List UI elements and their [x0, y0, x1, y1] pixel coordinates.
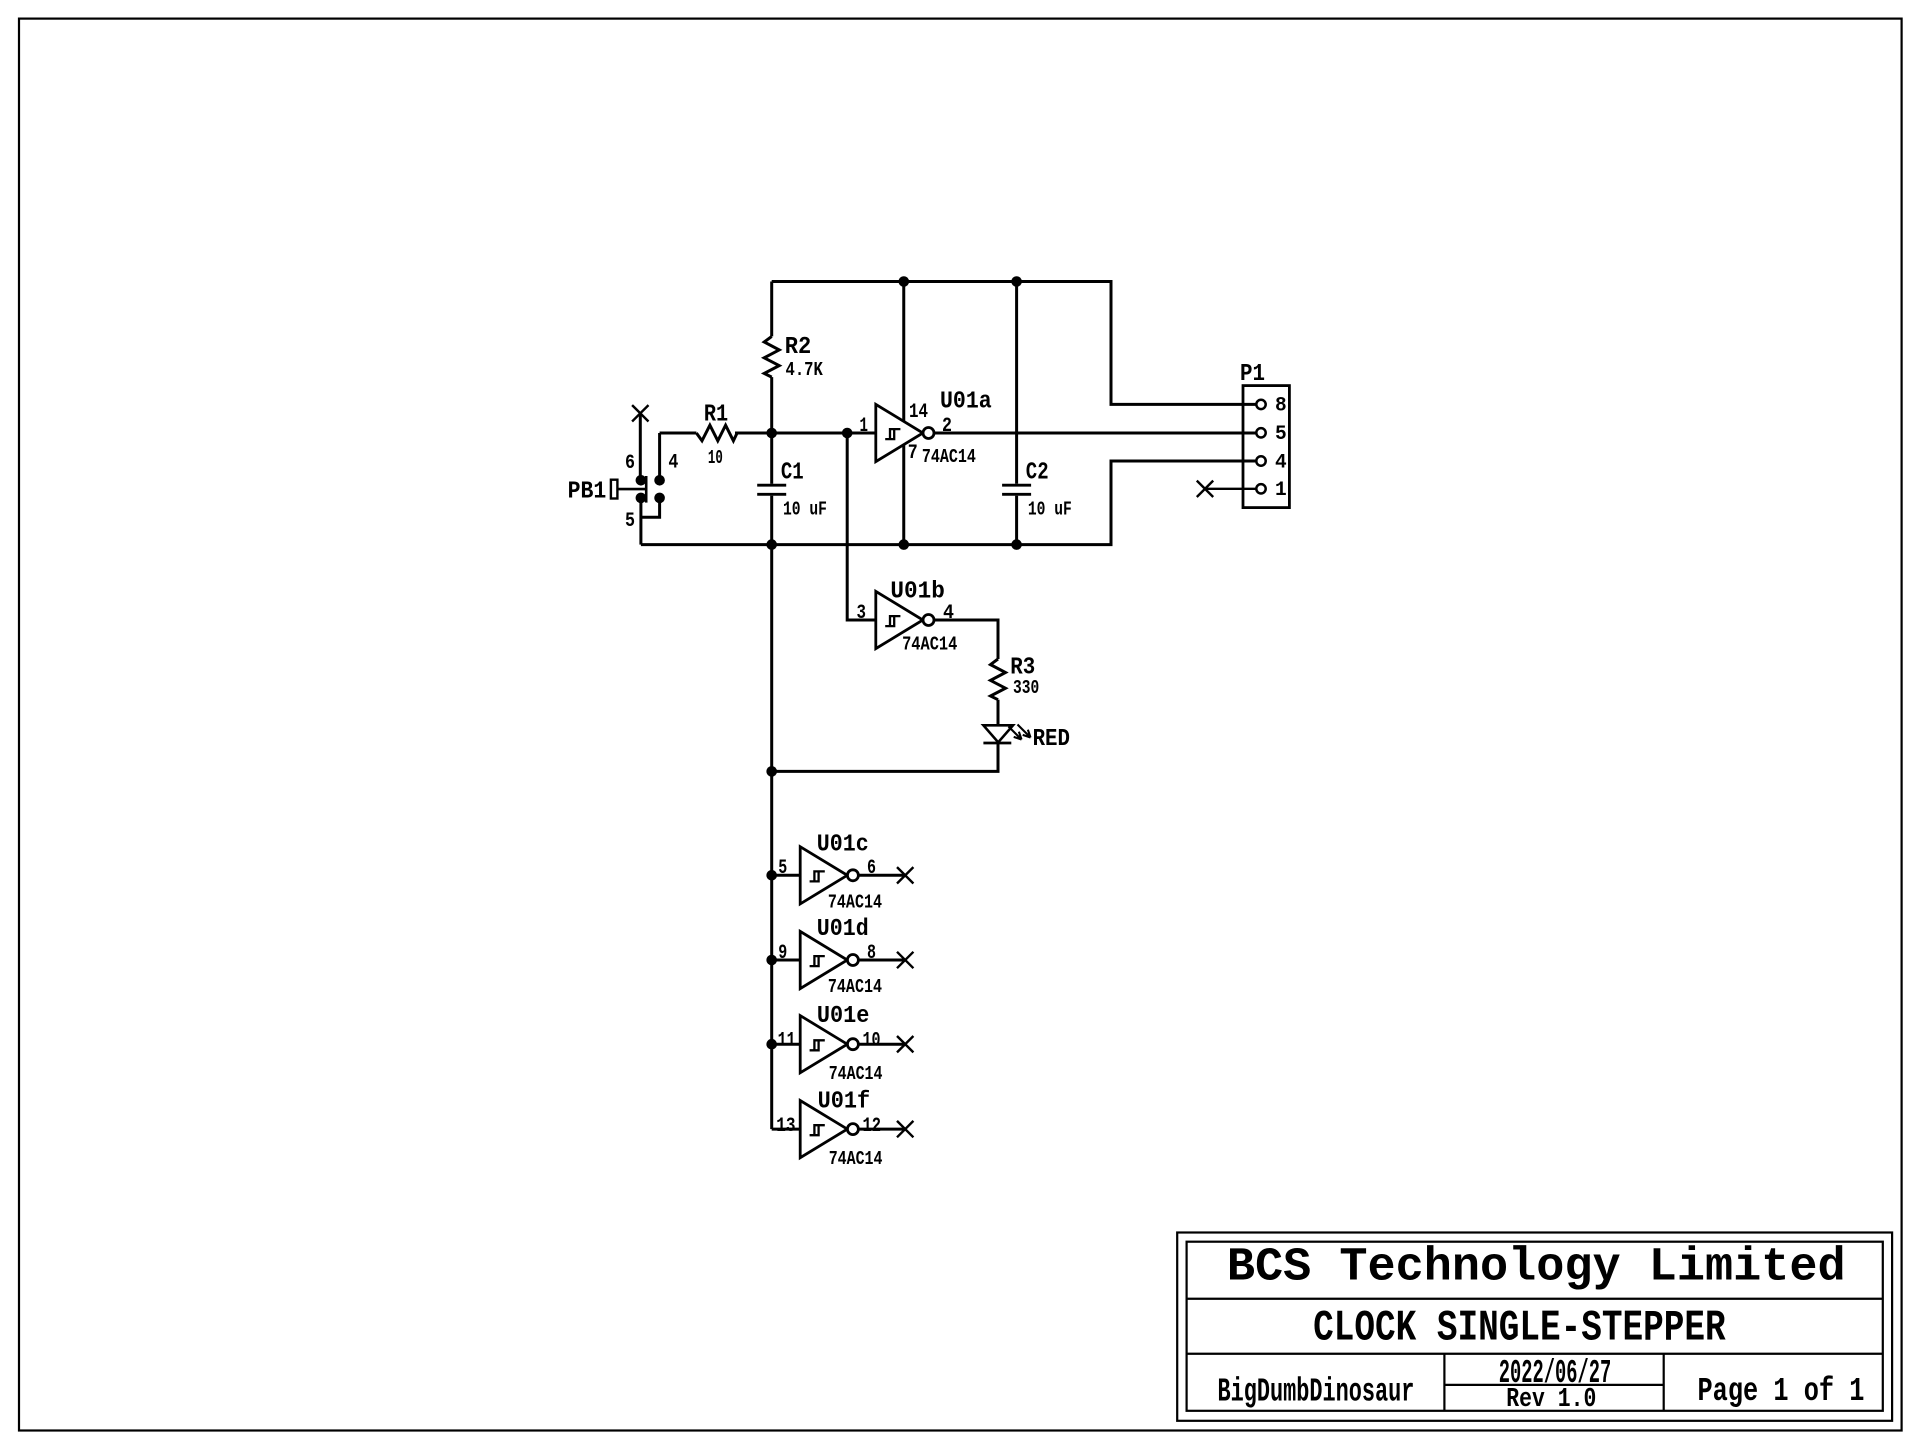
svg-text:R2: R2 [785, 334, 812, 361]
svg-text:10 uF: 10 uF [783, 499, 827, 521]
svg-text:4.7K: 4.7K [786, 359, 824, 381]
svg-text:PB1: PB1 [568, 478, 607, 505]
svg-text:RED: RED [1033, 726, 1070, 753]
svg-text:CLOCK SINGLE-STEPPER: CLOCK SINGLE-STEPPER [1313, 1303, 1726, 1353]
svg-text:4: 4 [1275, 451, 1287, 474]
svg-text:2: 2 [942, 415, 952, 438]
svg-text:330: 330 [1013, 677, 1039, 699]
svg-text:5: 5 [778, 857, 787, 880]
svg-text:Rev 1.0: Rev 1.0 [1506, 1385, 1596, 1415]
svg-text:74AC14: 74AC14 [922, 446, 976, 468]
svg-text:11: 11 [778, 1030, 796, 1053]
svg-text:U01a: U01a [940, 389, 992, 416]
svg-text:BigDumbDinosaur: BigDumbDinosaur [1218, 1374, 1415, 1411]
svg-text:C1: C1 [781, 459, 804, 486]
svg-text:U01e: U01e [817, 1003, 870, 1030]
svg-text:U01f: U01f [818, 1089, 871, 1116]
svg-text:9: 9 [778, 942, 787, 965]
svg-text:74AC14: 74AC14 [829, 1063, 883, 1085]
svg-text:74AC14: 74AC14 [902, 634, 957, 656]
svg-text:U01b: U01b [890, 579, 944, 606]
svg-text:4: 4 [668, 451, 678, 474]
svg-text:74AC14: 74AC14 [828, 976, 882, 998]
svg-text:8: 8 [1275, 395, 1287, 418]
svg-text:4: 4 [943, 602, 954, 625]
svg-text:10 uF: 10 uF [1028, 499, 1072, 521]
svg-text:R1: R1 [704, 402, 728, 429]
svg-text:10: 10 [863, 1030, 881, 1053]
svg-text:13: 13 [776, 1115, 795, 1138]
svg-text:74AC14: 74AC14 [828, 891, 882, 913]
svg-text:1: 1 [1275, 479, 1287, 502]
svg-text:8: 8 [867, 942, 876, 965]
svg-text:14: 14 [909, 401, 928, 424]
svg-text:P1: P1 [1240, 361, 1265, 388]
svg-text:Page 1 of 1: Page 1 of 1 [1698, 1373, 1865, 1410]
svg-text:5: 5 [625, 510, 635, 533]
svg-text:7: 7 [908, 442, 918, 465]
svg-text:5: 5 [1275, 423, 1287, 446]
svg-text:1: 1 [860, 415, 869, 438]
svg-text:10: 10 [708, 447, 723, 469]
svg-text:C2: C2 [1026, 459, 1049, 486]
svg-text:BCS Technology Limited: BCS Technology Limited [1227, 1241, 1846, 1294]
svg-text:U01d: U01d [817, 916, 869, 943]
svg-text:6: 6 [625, 452, 635, 475]
svg-text:6: 6 [867, 857, 876, 880]
svg-text:3: 3 [857, 602, 867, 625]
svg-text:U01c: U01c [817, 831, 869, 858]
svg-text:12: 12 [863, 1115, 882, 1138]
svg-text:74AC14: 74AC14 [829, 1148, 883, 1170]
